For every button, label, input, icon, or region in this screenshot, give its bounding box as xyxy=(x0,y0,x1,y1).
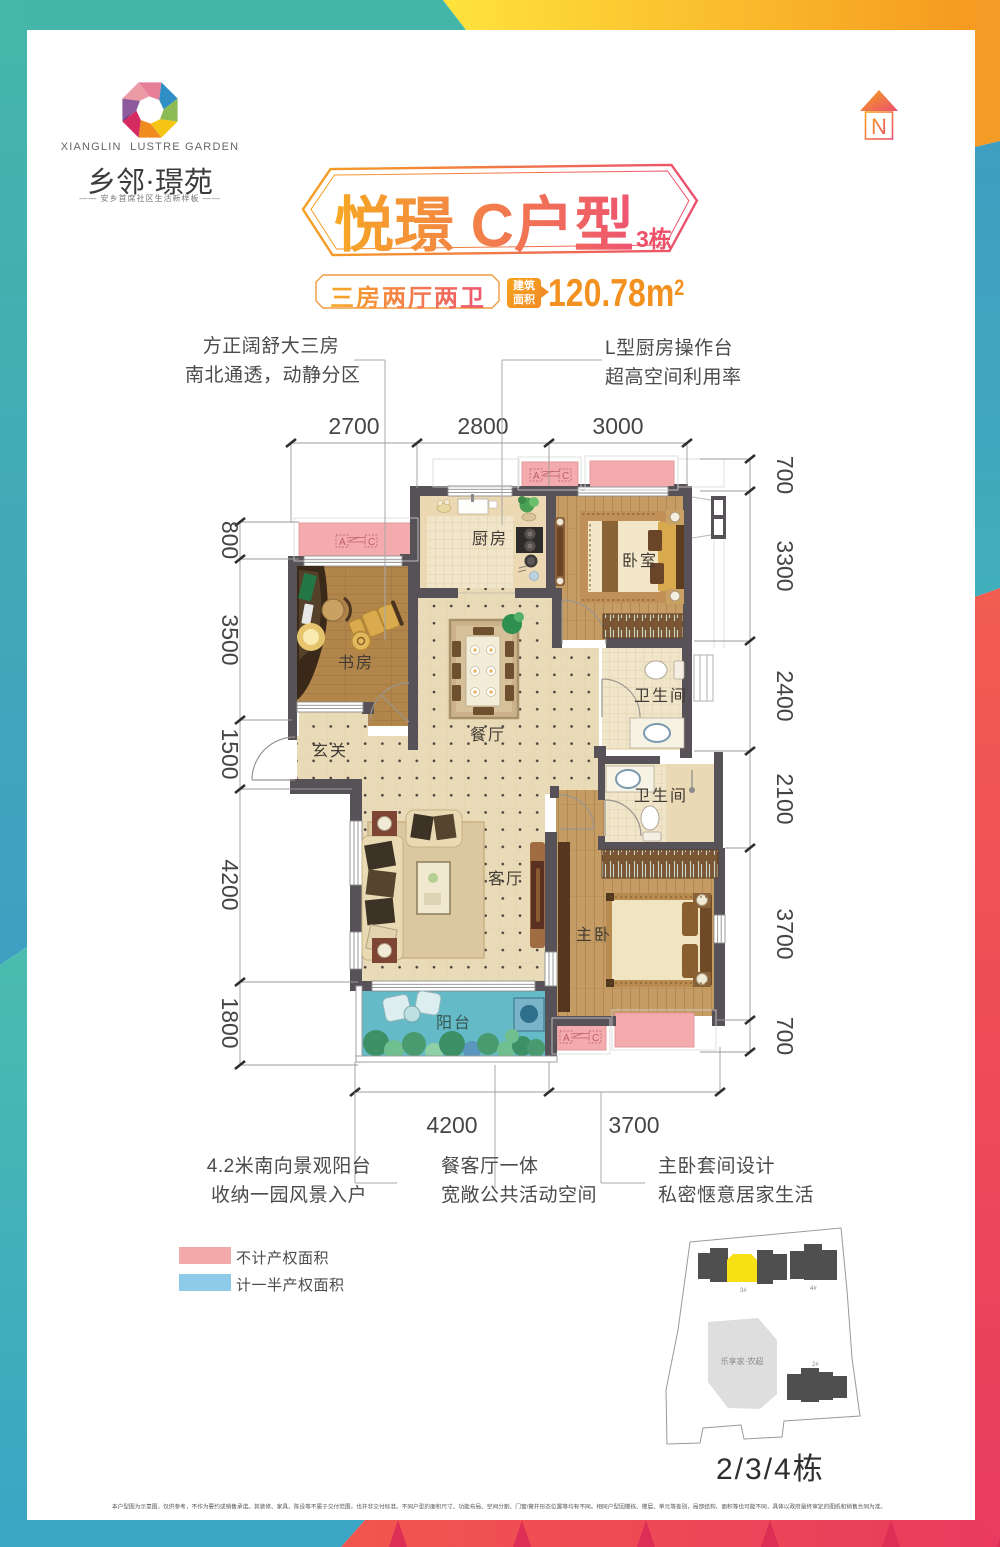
svg-text:A: A xyxy=(563,1033,570,1044)
svg-text:2#: 2# xyxy=(812,1362,819,1368)
svg-text:2800: 2800 xyxy=(457,413,508,439)
svg-text:C: C xyxy=(368,537,375,548)
svg-text:3500: 3500 xyxy=(217,614,243,665)
svg-text:C: C xyxy=(592,1033,599,1044)
svg-text:阳台: 阳台 xyxy=(436,1014,472,1032)
svg-text:1800: 1800 xyxy=(217,997,243,1048)
svg-text:3700: 3700 xyxy=(772,908,798,959)
svg-text:玄关: 玄关 xyxy=(312,742,348,760)
svg-text:2400: 2400 xyxy=(772,670,798,721)
svg-text:乐享家·农超: 乐享家·农超 xyxy=(721,1356,764,1366)
svg-text:700: 700 xyxy=(772,1017,798,1055)
svg-text:700: 700 xyxy=(772,456,798,494)
svg-text:800: 800 xyxy=(217,521,243,559)
svg-text:餐厅: 餐厅 xyxy=(470,726,506,744)
svg-text:3#: 3# xyxy=(740,1288,747,1294)
svg-text:A: A xyxy=(533,471,540,482)
svg-text:3000: 3000 xyxy=(592,413,643,439)
svg-text:2700: 2700 xyxy=(328,413,379,439)
svg-text:卧室: 卧室 xyxy=(622,552,658,570)
svg-text:厨房: 厨房 xyxy=(472,530,508,548)
svg-text:C: C xyxy=(562,471,569,482)
svg-text:3300: 3300 xyxy=(772,540,798,591)
svg-text:主卧: 主卧 xyxy=(576,926,612,944)
svg-text:3700: 3700 xyxy=(608,1112,659,1138)
svg-text:客厅: 客厅 xyxy=(488,870,524,888)
svg-text:4200: 4200 xyxy=(217,859,243,910)
svg-text:书房: 书房 xyxy=(338,654,374,672)
svg-text:卫生间: 卫生间 xyxy=(634,787,688,805)
svg-text:4#: 4# xyxy=(810,1286,817,1292)
svg-text:卫生间: 卫生间 xyxy=(634,687,688,705)
svg-text:2100: 2100 xyxy=(772,773,798,824)
svg-text:4200: 4200 xyxy=(426,1112,477,1138)
svg-text:1500: 1500 xyxy=(217,728,243,779)
svg-text:A: A xyxy=(339,537,346,548)
